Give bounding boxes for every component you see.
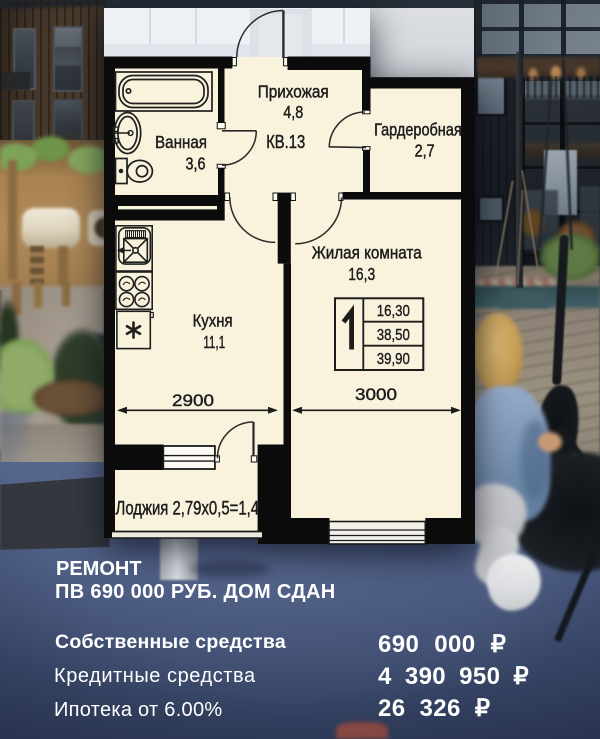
svg-text:Ванная: Ванная	[155, 132, 207, 152]
svg-text:2900: 2900	[172, 392, 214, 410]
svg-text:Кухня: Кухня	[193, 311, 233, 331]
svg-text:2,7: 2,7	[415, 141, 435, 161]
svg-text:4,8: 4,8	[283, 102, 303, 122]
svg-text:Прихожая: Прихожая	[258, 82, 329, 102]
svg-text:11,1: 11,1	[203, 332, 225, 352]
svg-text:16,3: 16,3	[348, 264, 375, 284]
svg-text:3,6: 3,6	[186, 154, 206, 174]
svg-text:16,30: 16,30	[377, 303, 410, 320]
svg-text:39,90: 39,90	[377, 351, 410, 368]
svg-text:38,50: 38,50	[377, 327, 410, 344]
svg-text:Жилая комната: Жилая комната	[312, 242, 422, 262]
svg-text:3000: 3000	[355, 386, 397, 404]
svg-text:Гардеробная: Гардеробная	[374, 120, 462, 140]
svg-text:Лоджия 2,79х0,5=1,4: Лоджия 2,79х0,5=1,4	[116, 499, 260, 520]
svg-text:КВ.13: КВ.13	[266, 131, 305, 152]
